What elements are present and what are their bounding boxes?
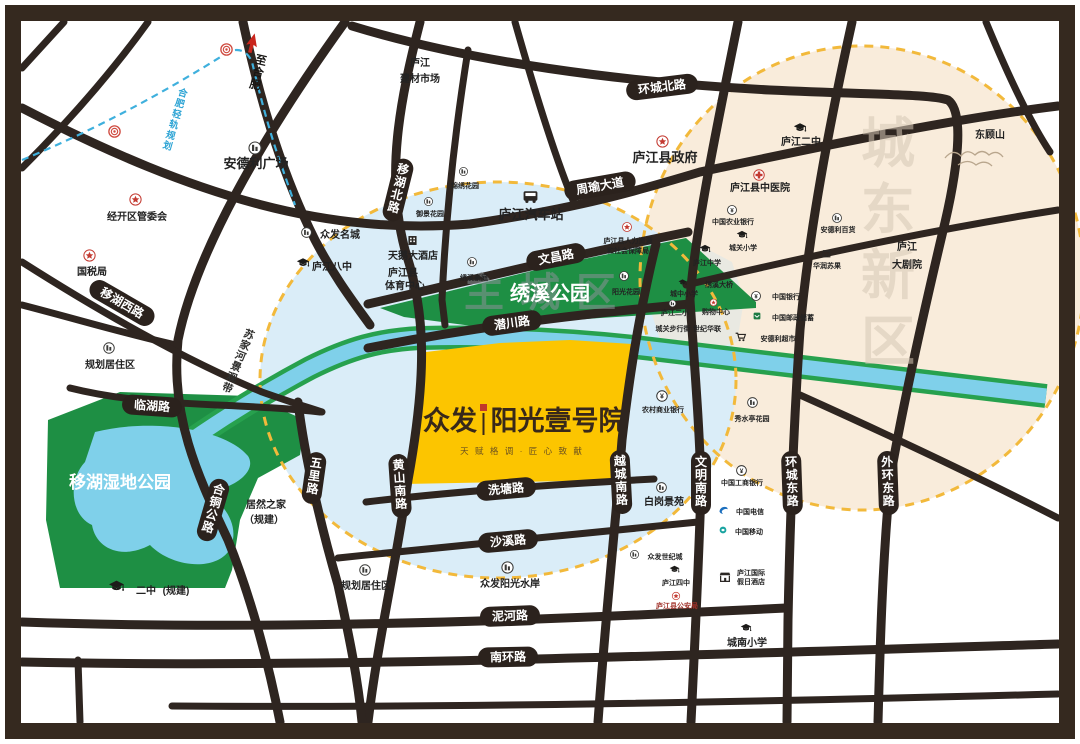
poi-erzhong-note: (规建) (163, 584, 190, 597)
building-icon (302, 228, 312, 238)
building-icon (833, 214, 842, 223)
poi-jingkaiqu: 经开区管委会 (107, 210, 167, 223)
telecom-icon (719, 507, 727, 514)
poi-lj-bazhong: 庐江八中 (312, 260, 352, 273)
poi-rcb: 农村商业银行 (641, 405, 684, 414)
poi-g3: 庐江二小 (661, 308, 689, 317)
road-label-nihe: 泥河路 (492, 607, 530, 623)
project-parcel: 众发 阳光壹号院 天 赋 格 调 · 匠 心 致 献 (404, 340, 632, 484)
poi-jiancai-1: 庐江 (410, 56, 430, 69)
star-icon (84, 250, 95, 261)
poi-theater-2: 大剧院 (892, 258, 922, 271)
post-icon (754, 313, 761, 320)
poi-zhongyi: 庐江县中医院 (730, 181, 790, 194)
project-name: 阳光壹号院 (491, 405, 626, 436)
building-icon (468, 258, 477, 267)
poi-lj-erzhong: 庐江二中 (781, 135, 821, 148)
metro-station-icon (109, 126, 120, 137)
poi-g5: 城关步行街 (656, 324, 691, 333)
poi-baigang: 白岗景苑 (644, 495, 684, 508)
road-sw-vertical (78, 660, 80, 722)
building-icon (360, 565, 371, 576)
poi-boc: 中国银行 (772, 292, 800, 301)
poi-holiday-2: 假日酒店 (737, 577, 765, 586)
bank-icon (657, 391, 668, 402)
road-south-extra (172, 694, 1058, 706)
poi-zf-mingcheng: 众发名城 (320, 228, 360, 241)
location-map: ¥ (0, 0, 1080, 744)
poi-renshe-2: 和社会保障局 (606, 246, 649, 255)
poi-telecom: 中国电信 (736, 507, 764, 516)
poi-gongan: 庐江县公安局 (656, 601, 698, 610)
poi-dongguhan: 东顾山 (975, 128, 1005, 141)
light-rail-label: 合肥轻轨规划 (161, 86, 189, 153)
poi-xiushuiting: 秀水亭花园 (734, 414, 770, 423)
shop-icon (720, 573, 731, 582)
poi-juran-2: （规建） (244, 513, 284, 526)
bank-icon (737, 466, 747, 476)
poi-abc-bank: 中国农业银行 (712, 217, 754, 226)
bank-icon (752, 292, 761, 301)
building-icon (748, 398, 758, 408)
school-icon (670, 566, 680, 573)
poi-chengguan: 城关小学 (729, 243, 757, 252)
poi-guihua1: 规划居住区 (85, 358, 135, 371)
poi-guihua2: 规划居住区 (341, 579, 391, 592)
star-icon (672, 592, 680, 600)
metro-station-icon (221, 44, 232, 55)
poi-erzhong: 二中 (136, 584, 156, 597)
project-tagline: 天 赋 格 调 · 匠 心 致 献 (460, 446, 584, 456)
road-label-wenmingnan: 文明南路 (695, 454, 708, 508)
poi-andeli-plaza: 安德利广场 (223, 156, 288, 171)
poi-sizhong: 庐江四中 (662, 578, 690, 587)
star-icon (710, 299, 717, 306)
xiuxi-park-label: 绣溪公园 (510, 281, 590, 305)
poi-shuian: 众发阳光水岸 (480, 577, 540, 590)
building-icon (630, 550, 638, 558)
project-seal (480, 404, 487, 411)
building-icon (104, 343, 115, 354)
poi-jiancai-2: 建材市场 (399, 72, 440, 85)
building-icon (249, 142, 261, 154)
wetland-park-label: 移湖湿地公园 (69, 472, 171, 492)
poi-g4: 购物中心 (702, 307, 730, 316)
poi-holiday-1: 庐江国际 (737, 568, 765, 577)
poi-sports-1: 庐江县 (388, 266, 418, 279)
poi-garden-a: 锦绣花园 (451, 181, 479, 190)
poi-tiane-hotel: 天鹅大酒店 (388, 249, 438, 262)
building-icon (669, 300, 676, 307)
road-corner-stub (22, 22, 64, 68)
poi-juran-1: 居然之家 (246, 498, 287, 511)
road-nihe (22, 608, 786, 625)
hotel-icon (408, 236, 416, 245)
poi-andeli-bh: 安德利百货 (821, 225, 856, 234)
poi-gov: 庐江县政府 (632, 150, 697, 165)
building-icon (424, 197, 432, 205)
poi-shiji: 众发世纪城 (648, 552, 683, 561)
poi-g1: 城中小学 (670, 289, 698, 298)
poi-lj-zhongxue: 庐江中学 (693, 258, 721, 267)
mobile-icon (720, 527, 727, 534)
poi-suguo: 华润苏果 (813, 261, 841, 270)
poi-post: 中国邮政储蓄 (772, 313, 814, 322)
poi-icbc: 中国工商银行 (721, 478, 763, 487)
map-canvas: ¥ (0, 0, 1080, 744)
poi-mobile: 中国移动 (735, 527, 763, 536)
poi-renshe-1: 庐江县人力资源 (604, 236, 653, 245)
road-nanhuan (22, 644, 1058, 664)
project-brand: 众发 (423, 405, 477, 436)
bank-icon (728, 206, 737, 215)
road-top-mid (515, 22, 575, 205)
building-icon (502, 562, 513, 573)
poi-g2: 绣溪大桥 (704, 280, 734, 289)
star-icon (657, 136, 668, 147)
road-label-nanhuan: 南环路 (490, 649, 527, 665)
poi-bus-station: 庐江汽车站 (498, 207, 563, 222)
logo-divider (483, 413, 485, 435)
poi-garden-b: 御景花园 (415, 209, 444, 218)
poi-sports-2: 体育中心 (385, 279, 425, 292)
school-icon (741, 624, 752, 631)
building-icon (459, 167, 467, 175)
star-icon (623, 223, 632, 232)
hospital-icon (754, 170, 765, 181)
poi-andeli-cs: 安德利超市 (761, 334, 796, 343)
road-label-linhu: 临湖路 (134, 397, 172, 415)
poi-guoshuiju: 国税局 (77, 265, 107, 278)
poi-theater-1: 庐江 (897, 240, 917, 253)
building-icon (620, 272, 629, 281)
poi-yg-garden: 阳光花园 (612, 287, 640, 296)
star-icon (130, 194, 141, 205)
poi-chengnan: 城南小学 (727, 636, 767, 649)
poi-haoting: 绣溪豪庭 (459, 273, 489, 282)
poi-g6: 世纪华联 (693, 324, 722, 333)
building-icon (657, 483, 667, 493)
